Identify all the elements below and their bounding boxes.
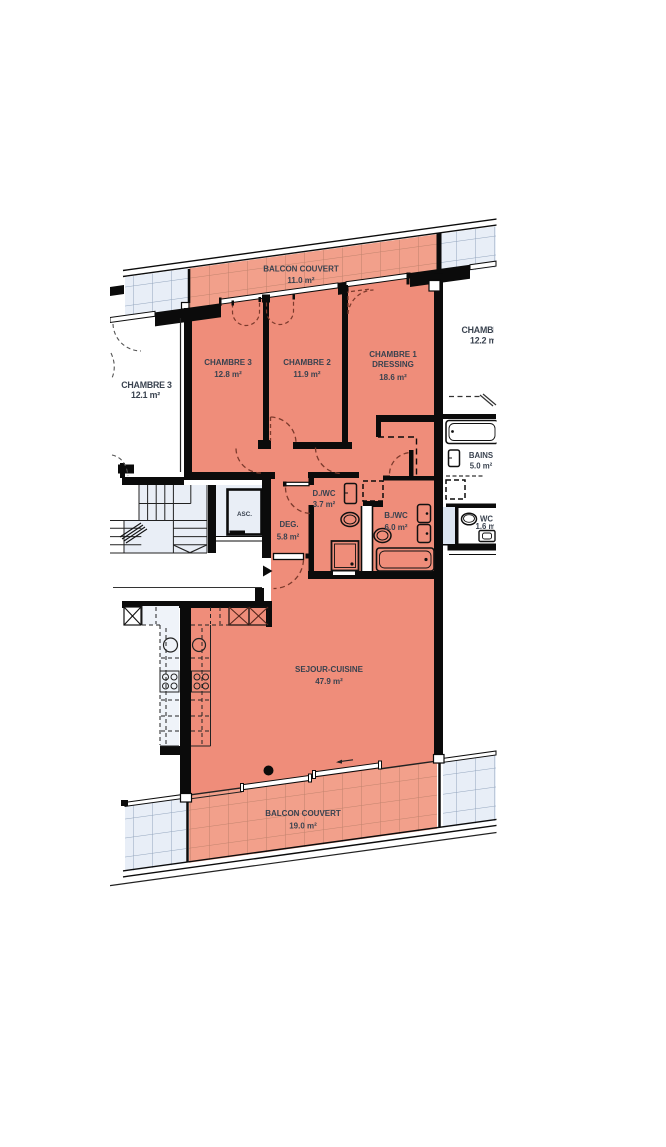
svg-text:12.8 m²: 12.8 m² (214, 370, 242, 379)
svg-text:5.0 m²: 5.0 m² (470, 462, 493, 471)
svg-text:6.0 m²: 6.0 m² (384, 523, 407, 532)
svg-text:12.2 m²: 12.2 m² (470, 336, 499, 346)
svg-text:DEG.: DEG. (279, 520, 298, 529)
svg-text:CHAMBRE: CHAMBRE (462, 325, 506, 335)
svg-text:D./WC: D./WC (313, 489, 336, 498)
svg-text:ASC.: ASC. (237, 511, 252, 518)
svg-text:BALCON COUVERT: BALCON COUVERT (263, 265, 339, 274)
svg-text:11.9 m²: 11.9 m² (293, 370, 320, 379)
svg-text:BAINS: BAINS (469, 451, 493, 460)
svg-text:1.6 m²: 1.6 m² (476, 522, 499, 531)
svg-text:CHAMBRE 3: CHAMBRE 3 (204, 358, 252, 367)
svg-text:CHAMBRE 1: CHAMBRE 1 (369, 350, 417, 359)
svg-text:BALCON COUVERT: BALCON COUVERT (265, 809, 341, 818)
svg-text:47.9 m²: 47.9 m² (315, 677, 343, 686)
svg-text:CHAMBRE 2: CHAMBRE 2 (283, 358, 331, 367)
svg-text:CHAMBRE 3: CHAMBRE 3 (121, 380, 172, 390)
svg-text:3.7 m²: 3.7 m² (313, 500, 336, 509)
svg-text:12.1 m²: 12.1 m² (131, 390, 160, 400)
svg-text:SEJOUR-CUISINE: SEJOUR-CUISINE (295, 665, 364, 674)
svg-text:11.0 m²: 11.0 m² (287, 276, 314, 285)
svg-text:19.0 m²: 19.0 m² (289, 822, 317, 831)
svg-text:DRESSING: DRESSING (372, 360, 414, 369)
svg-text:18.6 m²: 18.6 m² (379, 373, 407, 382)
svg-text:5.8 m²: 5.8 m² (277, 533, 300, 542)
svg-text:B./WC: B./WC (384, 511, 408, 520)
